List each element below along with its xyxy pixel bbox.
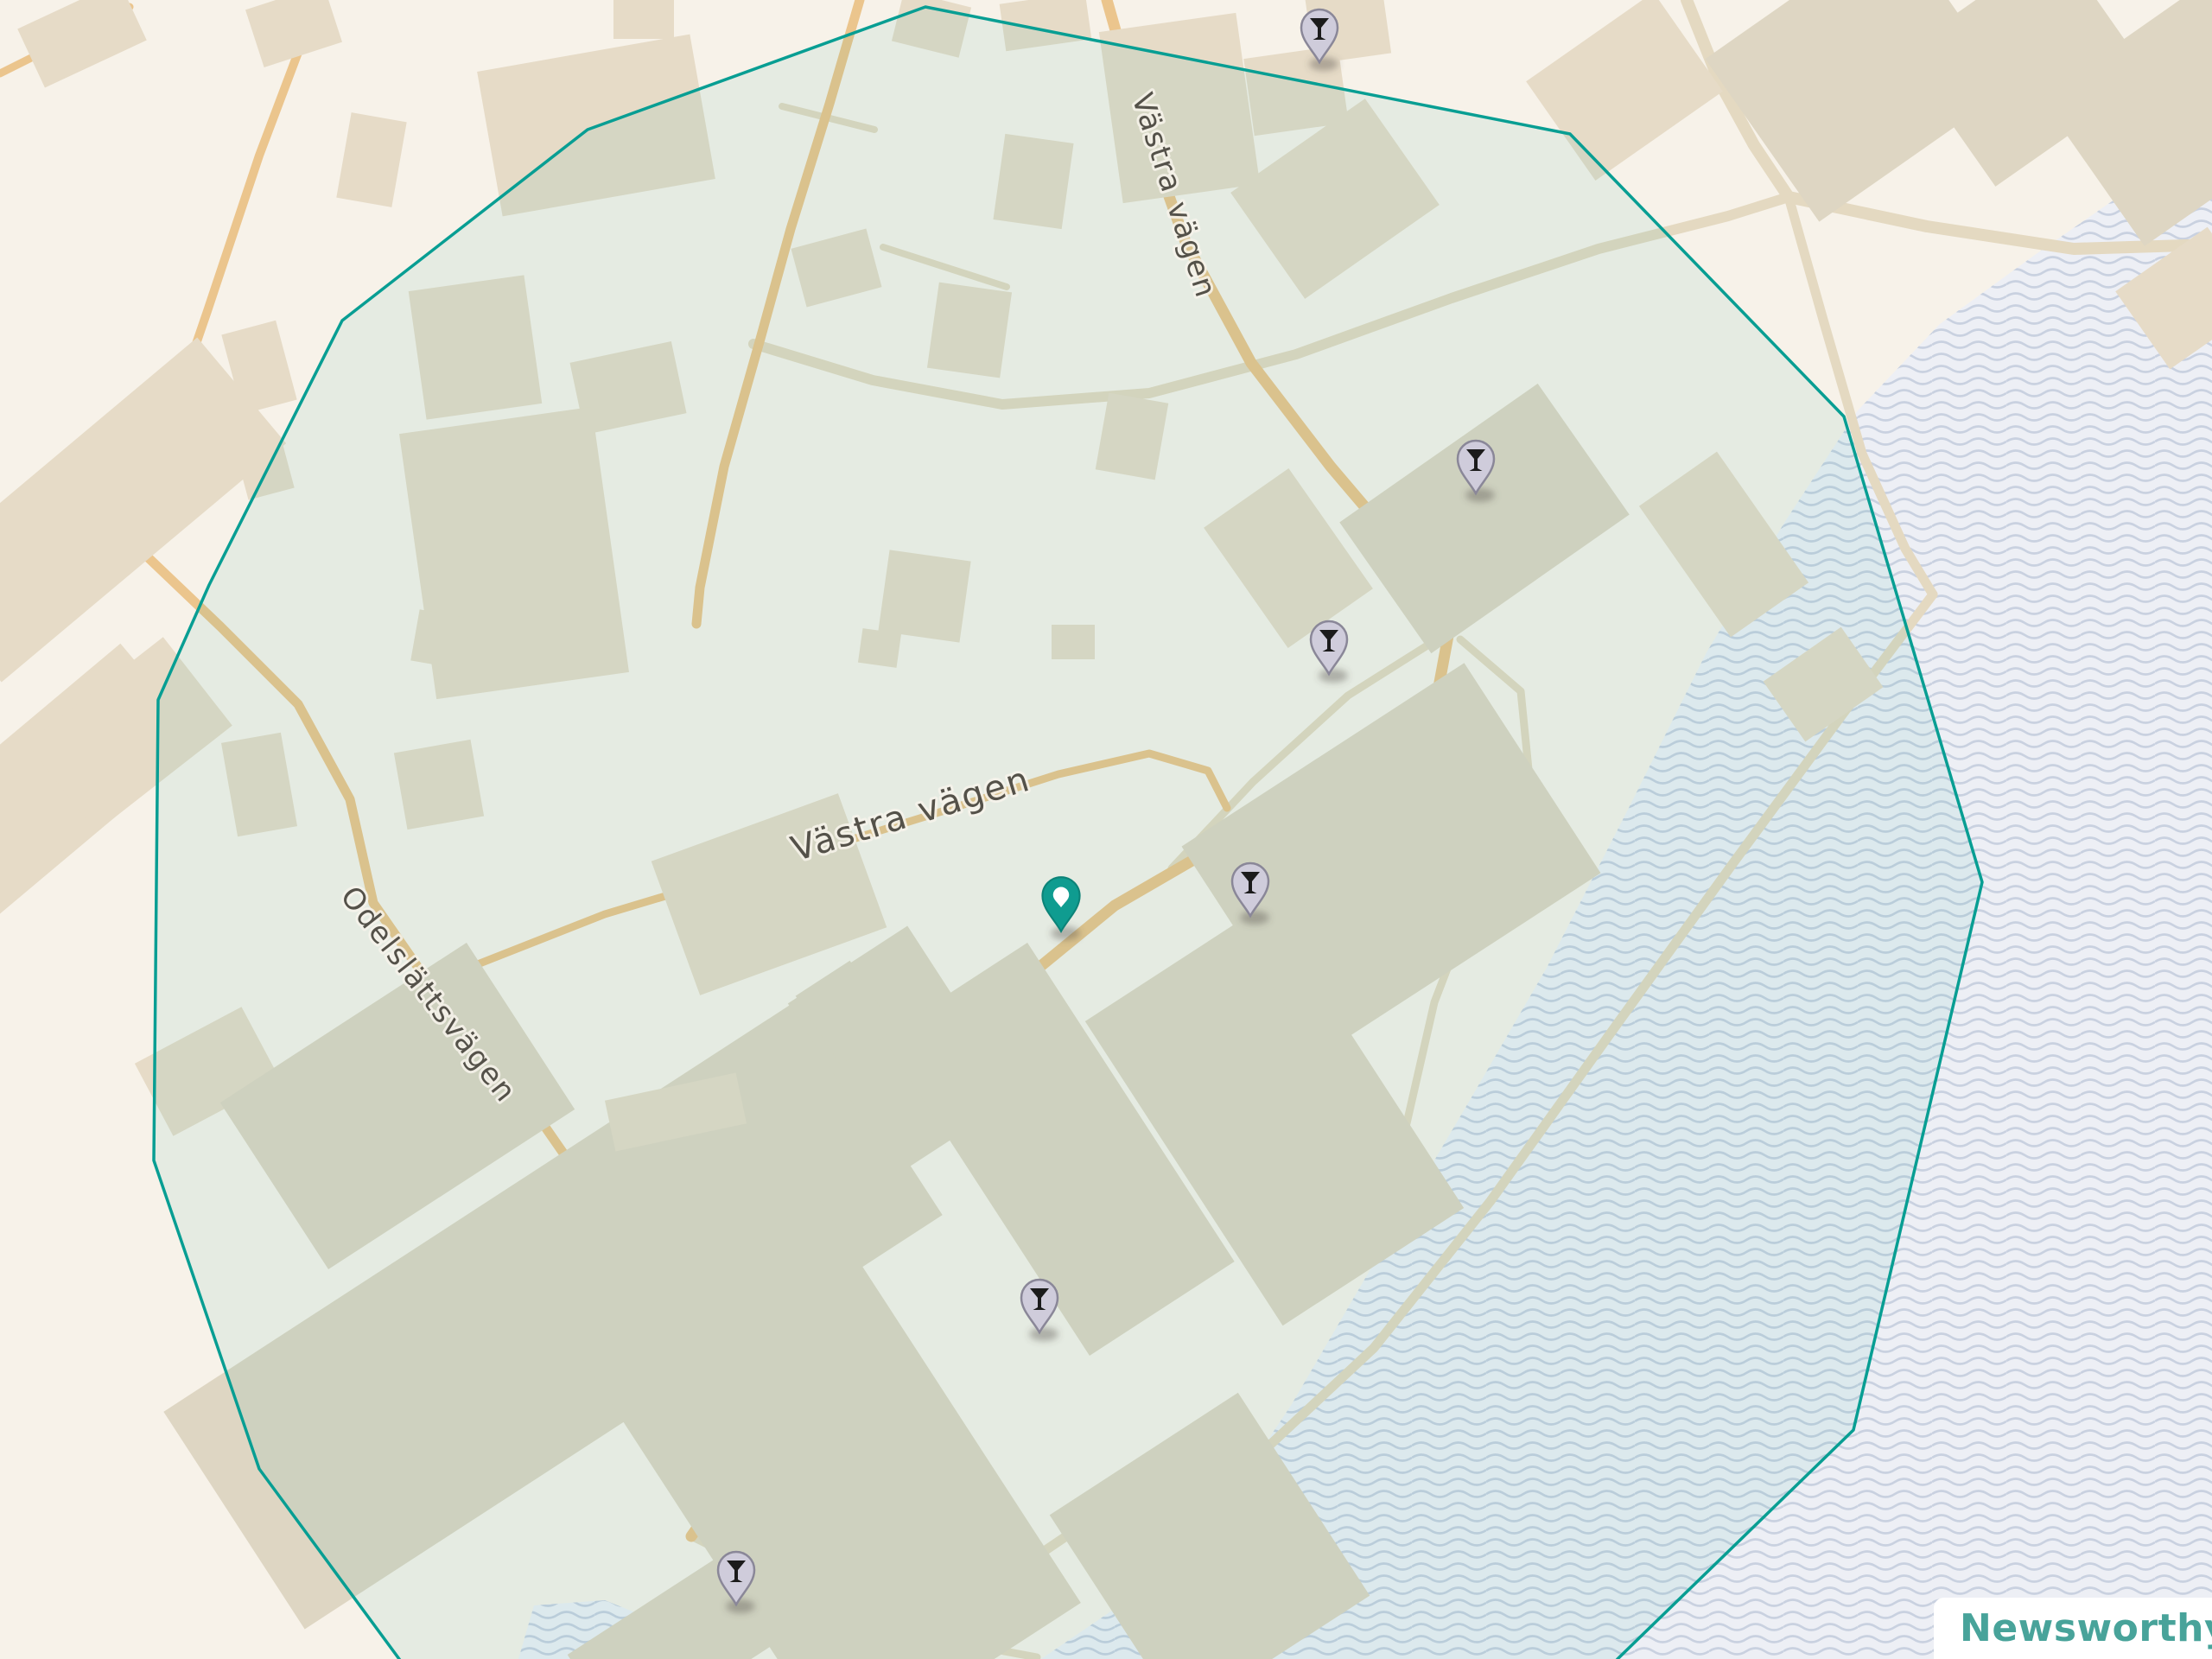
brand-name: Newsworthy (1960, 1606, 2212, 1650)
pin-shadow (1240, 911, 1269, 925)
building (613, 0, 674, 39)
pin-shadow (1051, 926, 1080, 940)
pin-shadow (726, 1599, 755, 1613)
pin-shadow (1465, 488, 1495, 502)
map-canvas[interactable]: Västra vägenVästra vägenOdelslättsvägen (0, 0, 2212, 1659)
pin-shadow (1029, 1327, 1058, 1341)
pin-shadow (1309, 57, 1338, 71)
pin-shadow (1319, 669, 1348, 683)
newsworthy-logo[interactable]: Newsworthy (1934, 1598, 2212, 1659)
